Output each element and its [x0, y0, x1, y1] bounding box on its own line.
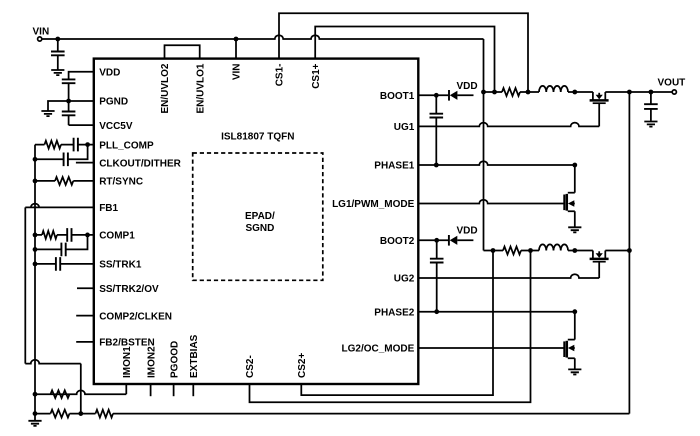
svg-text:CS1+: CS1+ — [311, 63, 322, 88]
svg-text:VOUT: VOUT — [658, 78, 686, 89]
svg-text:ISL81807 TQFN: ISL81807 TQFN — [221, 132, 294, 143]
svg-text:PHASE1: PHASE1 — [374, 161, 414, 172]
svg-text:PHASE2: PHASE2 — [374, 307, 414, 318]
svg-text:PGND: PGND — [99, 97, 128, 108]
svg-text:EN/UVLO2: EN/UVLO2 — [160, 63, 171, 113]
svg-text:PLL_COMP: PLL_COMP — [99, 140, 154, 151]
svg-text:UG2: UG2 — [394, 274, 415, 285]
svg-text:VIN: VIN — [232, 64, 243, 81]
svg-text:IMON1: IMON1 — [122, 346, 133, 378]
svg-text:CS2-: CS2- — [245, 355, 256, 378]
svg-text:VDD: VDD — [99, 67, 120, 78]
svg-text:CS1-: CS1- — [275, 64, 286, 87]
svg-text:SGND: SGND — [245, 223, 274, 234]
svg-text:VCC5V: VCC5V — [99, 121, 133, 132]
svg-text:EPAD/: EPAD/ — [245, 211, 275, 222]
svg-text:LG1/PWM_MODE: LG1/PWM_MODE — [332, 199, 415, 210]
svg-text:SS/TRK1: SS/TRK1 — [99, 260, 142, 271]
svg-text:BOOT1: BOOT1 — [380, 91, 415, 102]
svg-text:VDD: VDD — [457, 81, 478, 92]
svg-text:SS/TRK2/OV: SS/TRK2/OV — [99, 284, 159, 295]
svg-text:LG2/OC_MODE: LG2/OC_MODE — [342, 344, 415, 355]
svg-text:CLKOUT/DITHER: CLKOUT/DITHER — [99, 158, 181, 169]
svg-text:EN/UVLO1: EN/UVLO1 — [195, 63, 206, 113]
svg-text:COMP1: COMP1 — [99, 231, 135, 242]
svg-text:VIN: VIN — [33, 26, 50, 37]
svg-text:COMP2/CLKEN: COMP2/CLKEN — [99, 311, 172, 322]
svg-text:CS2+: CS2+ — [297, 353, 308, 378]
svg-text:FB1: FB1 — [99, 203, 118, 214]
svg-text:RT/SYNC: RT/SYNC — [99, 177, 143, 188]
svg-text:UG1: UG1 — [394, 122, 415, 133]
svg-text:VDD: VDD — [457, 226, 478, 237]
svg-text:IMON2: IMON2 — [146, 346, 157, 378]
svg-text:BOOT2: BOOT2 — [380, 236, 415, 247]
svg-text:EXTBIAS: EXTBIAS — [189, 334, 200, 378]
svg-text:PGOOD: PGOOD — [169, 341, 180, 378]
